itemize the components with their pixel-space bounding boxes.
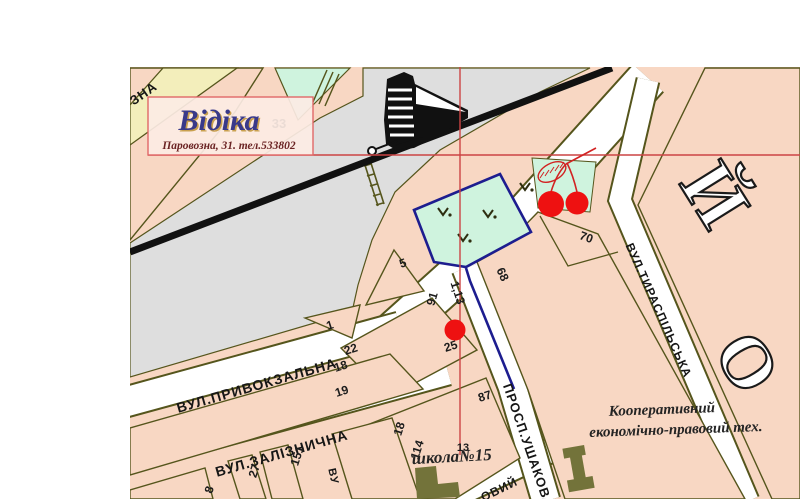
logo-box: Відіка Відіка Паровозна, 31. тел.533802	[148, 97, 313, 155]
city-map: Й О ЗНА ВУЛ.ПРИВОКЗАЛЬНА ВУЛ.ЗАЛІЗНИЧНА …	[130, 67, 800, 499]
logo-brand: Відіка	[177, 104, 259, 137]
marker-dot	[445, 320, 466, 341]
map-screenshot: Й О ЗНА ВУЛ.ПРИВОКЗАЛЬНА ВУЛ.ЗАЛІЗНИЧНА …	[0, 0, 800, 499]
logo-address: Паровозна, 31. тел.533802	[161, 140, 296, 152]
map-canvas: Й О ЗНА ВУЛ.ПРИВОКЗАЛЬНА ВУЛ.ЗАЛІЗНИЧНА …	[130, 67, 800, 499]
